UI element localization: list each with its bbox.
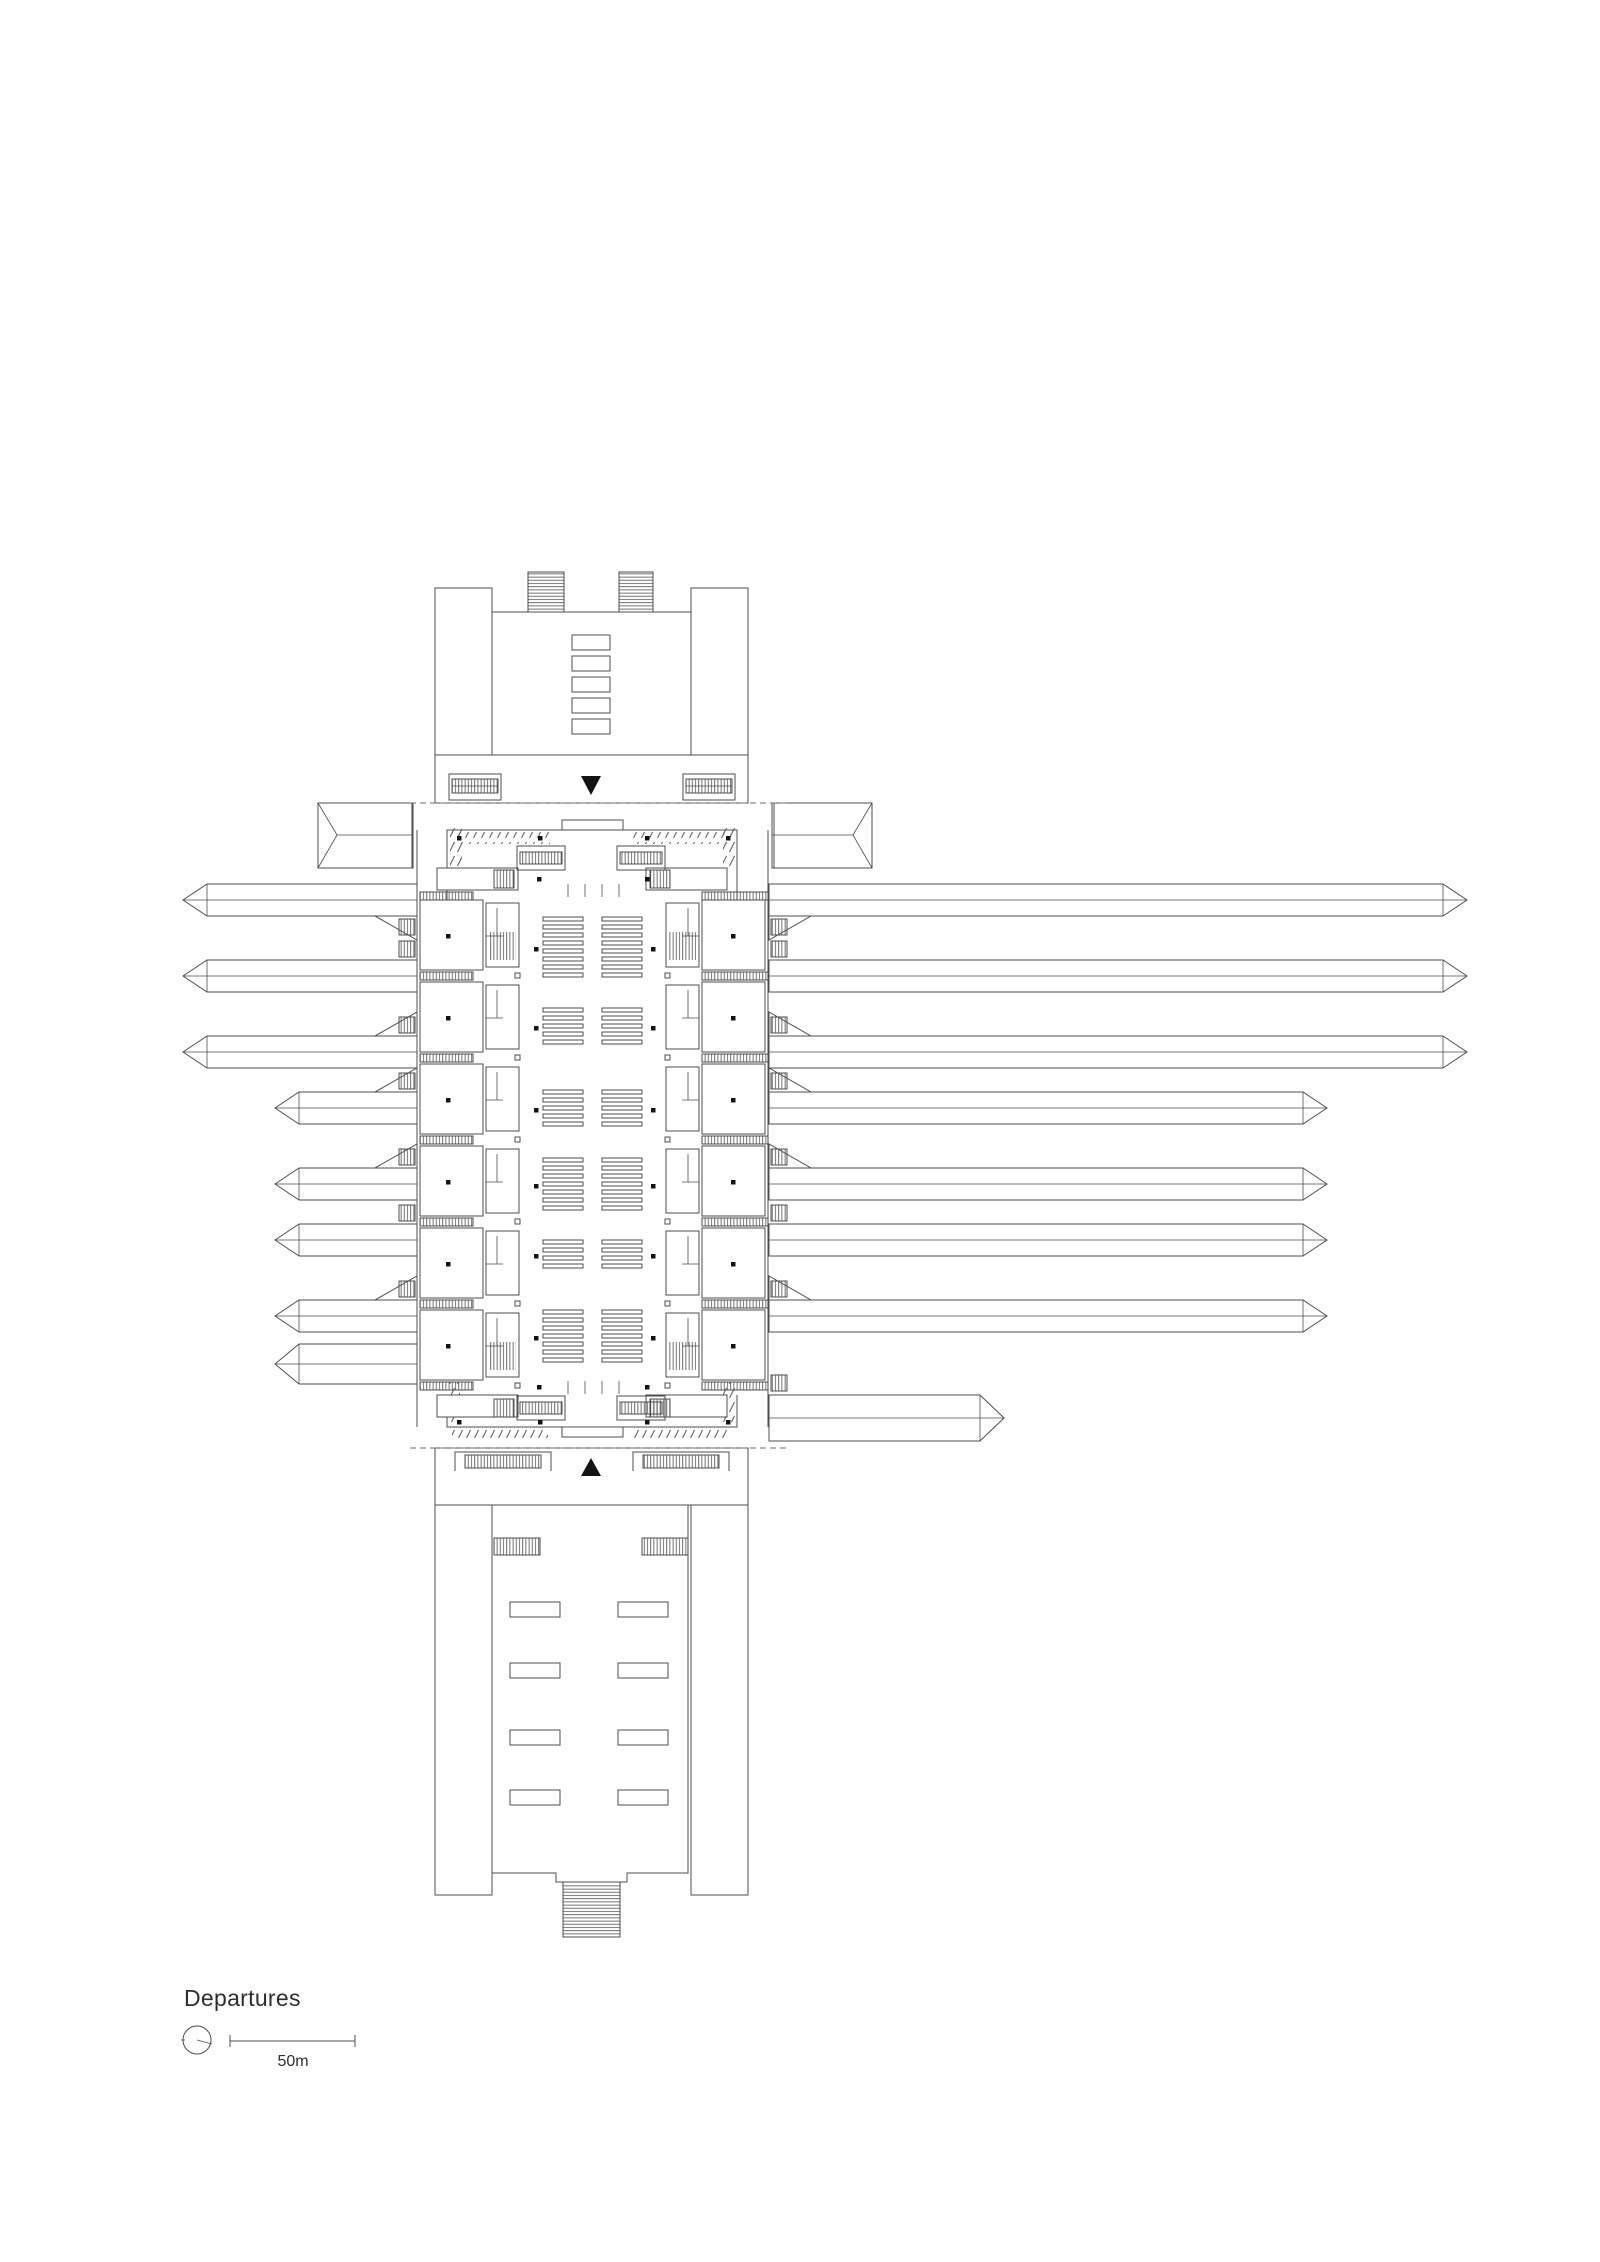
bench-row (602, 1166, 642, 1170)
stair-room (666, 1149, 699, 1213)
canopy (562, 1427, 623, 1437)
kiosk (572, 677, 610, 692)
bench-row (543, 1114, 583, 1118)
scale-bar (230, 2035, 355, 2047)
platform-stairs (399, 941, 415, 957)
edge-hatch (450, 828, 462, 868)
edge-hatch (452, 832, 550, 844)
escalator (520, 1402, 562, 1414)
column-dot (538, 1420, 543, 1425)
door-mark (665, 1137, 670, 1142)
wall-strip (702, 1300, 768, 1308)
column-dot (651, 1108, 656, 1113)
bench-row (543, 917, 583, 921)
door-mark (515, 1383, 520, 1388)
kiosk (572, 656, 610, 671)
corner-stairs (494, 1399, 514, 1417)
column-dot (731, 1098, 736, 1103)
column-dot (651, 1336, 656, 1341)
bench-row (543, 1358, 583, 1362)
wall-strip (702, 1382, 768, 1390)
platform-stairs (399, 919, 415, 935)
platform-stairs (771, 1149, 787, 1165)
bench-row (543, 1240, 583, 1244)
bench-row (543, 1090, 583, 1094)
platform-stairs (399, 1205, 415, 1221)
door-mark (665, 1055, 670, 1060)
column-dot (534, 1108, 539, 1113)
bench-row (602, 1318, 642, 1322)
corner-stairs (494, 870, 514, 888)
side-room (420, 1146, 483, 1216)
wall-strip (702, 892, 768, 900)
column-dot (534, 947, 539, 952)
door-mark (665, 1383, 670, 1388)
side-room (420, 982, 483, 1052)
wall-strip (420, 1382, 473, 1390)
kiosk (618, 1602, 668, 1617)
bench-row (543, 1016, 583, 1020)
platform-stairs (399, 1281, 415, 1297)
platform-stairs (771, 941, 787, 957)
bench-row (602, 1040, 642, 1044)
kiosk (618, 1730, 668, 1745)
column-dot (457, 1420, 462, 1425)
column-dot (446, 1180, 451, 1185)
wall-strip (702, 1054, 768, 1062)
bench-row (602, 965, 642, 969)
bench-row (543, 1334, 583, 1338)
side-room (420, 1064, 483, 1134)
bench-row (602, 1256, 642, 1260)
stair-room (486, 1067, 519, 1131)
bench-row (602, 1182, 642, 1186)
door-mark (665, 973, 670, 978)
kiosk (572, 635, 610, 650)
stair-room (666, 985, 699, 1049)
bench-row (602, 1310, 642, 1314)
kiosk (618, 1790, 668, 1805)
stair-room (666, 1231, 699, 1295)
bench-row (543, 1008, 583, 1012)
platform-stairs (771, 1205, 787, 1221)
bench-row (543, 1166, 583, 1170)
kiosk (510, 1790, 560, 1805)
escalator (620, 1402, 662, 1414)
stair-room (486, 985, 519, 1049)
column-dot (651, 947, 656, 952)
edge-hatch (723, 828, 735, 868)
bench-row (543, 1024, 583, 1028)
bench-row (602, 1016, 642, 1020)
bench-row (602, 1198, 642, 1202)
bench-row (602, 1114, 642, 1118)
central-concourse (417, 820, 768, 1438)
door-mark (515, 1137, 520, 1142)
wall-strip (420, 892, 473, 900)
platform-stairs (399, 1149, 415, 1165)
bench-row (543, 1350, 583, 1354)
bench-row (602, 1158, 642, 1162)
side-room (420, 1310, 483, 1380)
bench-row (602, 1032, 642, 1036)
bench-row (543, 1248, 583, 1252)
side-room (420, 900, 483, 970)
bench-row (543, 1182, 583, 1186)
wall-strip (420, 1054, 473, 1062)
column-dot (446, 1016, 451, 1021)
bench-row (602, 941, 642, 945)
column-dot (534, 1184, 539, 1189)
legend: Departures 50m (181, 1985, 355, 2070)
lower-pylon-east (691, 1505, 748, 1895)
bench-row (543, 1198, 583, 1202)
platform-stairs (771, 1281, 787, 1297)
bench-row (543, 1256, 583, 1260)
column-dot (731, 1262, 736, 1267)
platform-stub (772, 803, 872, 868)
floor-plan-drawing: Departures 50m (0, 0, 1600, 2262)
column-dot (726, 1420, 731, 1425)
bench-row (602, 973, 642, 977)
bench-row (602, 1024, 642, 1028)
kiosk (510, 1602, 560, 1617)
lower-pylon-west (435, 1505, 492, 1895)
corner-stairs (650, 870, 670, 888)
bench-row (543, 1318, 583, 1322)
escalator (520, 852, 562, 864)
bench-row (602, 917, 642, 921)
bench-row (543, 1264, 583, 1268)
bench-row (602, 957, 642, 961)
bench-row (602, 1240, 642, 1244)
column-dot (651, 1026, 656, 1031)
column-dot (645, 877, 650, 882)
edge-hatch (633, 1428, 729, 1438)
wall-strip (420, 1218, 473, 1226)
bench-row (543, 941, 583, 945)
column-dot (645, 836, 650, 841)
platform-stairs (399, 1073, 415, 1089)
walkway (643, 1455, 719, 1468)
platforms-right (769, 803, 1467, 1441)
bench-row (602, 1190, 642, 1194)
platform-stairs (771, 1017, 787, 1033)
kiosk (572, 698, 610, 713)
north-indicator-icon (181, 2026, 212, 2054)
column-dot (651, 1184, 656, 1189)
stair-room (486, 1149, 519, 1213)
bench-row (543, 1206, 583, 1210)
bench-row (543, 1032, 583, 1036)
entrance-stairs (528, 572, 564, 612)
column-dot (457, 836, 462, 841)
bench-row (543, 1122, 583, 1126)
bench-row (543, 933, 583, 937)
platform-stairs (771, 919, 787, 935)
column-dot (645, 1420, 650, 1425)
door-mark (515, 973, 520, 978)
bench-row (543, 965, 583, 969)
stair-treads (669, 1342, 696, 1370)
wall-strip (420, 972, 473, 980)
kiosk (572, 719, 610, 734)
escalator (642, 1538, 688, 1555)
bench-row (602, 1334, 642, 1338)
platform-stub (318, 803, 413, 868)
escalator (620, 852, 662, 864)
bench-row (602, 933, 642, 937)
bench-row (602, 1248, 642, 1252)
platform-stairs (771, 1375, 787, 1391)
bench-row (543, 1158, 583, 1162)
bench-row (543, 1342, 583, 1346)
door-mark (515, 1219, 520, 1224)
entrance-stairs (563, 1884, 620, 1936)
bench-row (543, 925, 583, 929)
column-dot (645, 1385, 650, 1390)
bench-row (543, 1040, 583, 1044)
bench-row (543, 1106, 583, 1110)
kiosk (510, 1663, 560, 1678)
bench-row (602, 1206, 642, 1210)
walkway (465, 1455, 541, 1468)
page-title: Departures (184, 1985, 301, 2011)
top-wing (435, 572, 748, 803)
upper-pylon-west (435, 588, 492, 755)
bench-row (602, 1106, 642, 1110)
platforms-left (183, 803, 417, 1384)
bench-row (543, 1190, 583, 1194)
column-dot (731, 1180, 736, 1185)
side-room (420, 1228, 483, 1298)
bench-row (543, 1310, 583, 1314)
wall-strip (702, 1218, 768, 1226)
stair-room (666, 1067, 699, 1131)
lower-hall (492, 1505, 688, 1937)
door-mark (665, 1301, 670, 1306)
column-dot (534, 1254, 539, 1259)
column-dot (726, 836, 731, 841)
bench-row (602, 1090, 642, 1094)
platform-stairs (399, 1017, 415, 1033)
column-dot (731, 1016, 736, 1021)
bench-row (543, 1098, 583, 1102)
kiosk (618, 1663, 668, 1678)
column-dot (731, 1344, 736, 1349)
kiosk (510, 1730, 560, 1745)
upper-pylon-east (691, 588, 748, 755)
door-mark (665, 1219, 670, 1224)
stair-treads (669, 932, 696, 960)
bench-row (543, 973, 583, 977)
column-dot (538, 836, 543, 841)
platform-stairs (771, 1073, 787, 1089)
bench-row (602, 1098, 642, 1102)
column-dot (731, 934, 736, 939)
bench-row (602, 925, 642, 929)
column-dot (446, 1344, 451, 1349)
bench-row (602, 1264, 642, 1268)
column-dot (651, 1254, 656, 1259)
bench-row (543, 957, 583, 961)
bench-row (543, 1326, 583, 1330)
stair-treads (489, 932, 516, 960)
column-dot (534, 1026, 539, 1031)
escalator (494, 1538, 540, 1555)
page: Departures 50m (0, 0, 1600, 2262)
bench-row (602, 1326, 642, 1330)
column-dot (446, 934, 451, 939)
canopy (562, 820, 623, 830)
door-mark (515, 1055, 520, 1060)
bench-row (602, 1350, 642, 1354)
stair-treads (489, 1342, 516, 1370)
scale-label: 50m (277, 2053, 308, 2070)
wall-strip (420, 1300, 473, 1308)
door-mark (515, 1301, 520, 1306)
column-dot (446, 1098, 451, 1103)
wall-strip (420, 1136, 473, 1144)
bench-row (543, 1174, 583, 1178)
bench-row (602, 1122, 642, 1126)
bench-row (602, 1174, 642, 1178)
bench-row (602, 1342, 642, 1346)
column-dot (446, 1262, 451, 1267)
bottom-wing (435, 1448, 748, 1937)
bench-row (602, 949, 642, 953)
wall-strip (702, 1136, 768, 1144)
bench-row (543, 949, 583, 953)
column-dot (534, 1336, 539, 1341)
column-dot (537, 877, 542, 882)
bench-row (602, 1008, 642, 1012)
stair-room (486, 1231, 519, 1295)
bench-row (602, 1358, 642, 1362)
edge-hatch (452, 1428, 548, 1438)
entrance-stairs (619, 572, 653, 612)
column-dot (537, 1385, 542, 1390)
wall-strip (702, 972, 768, 980)
